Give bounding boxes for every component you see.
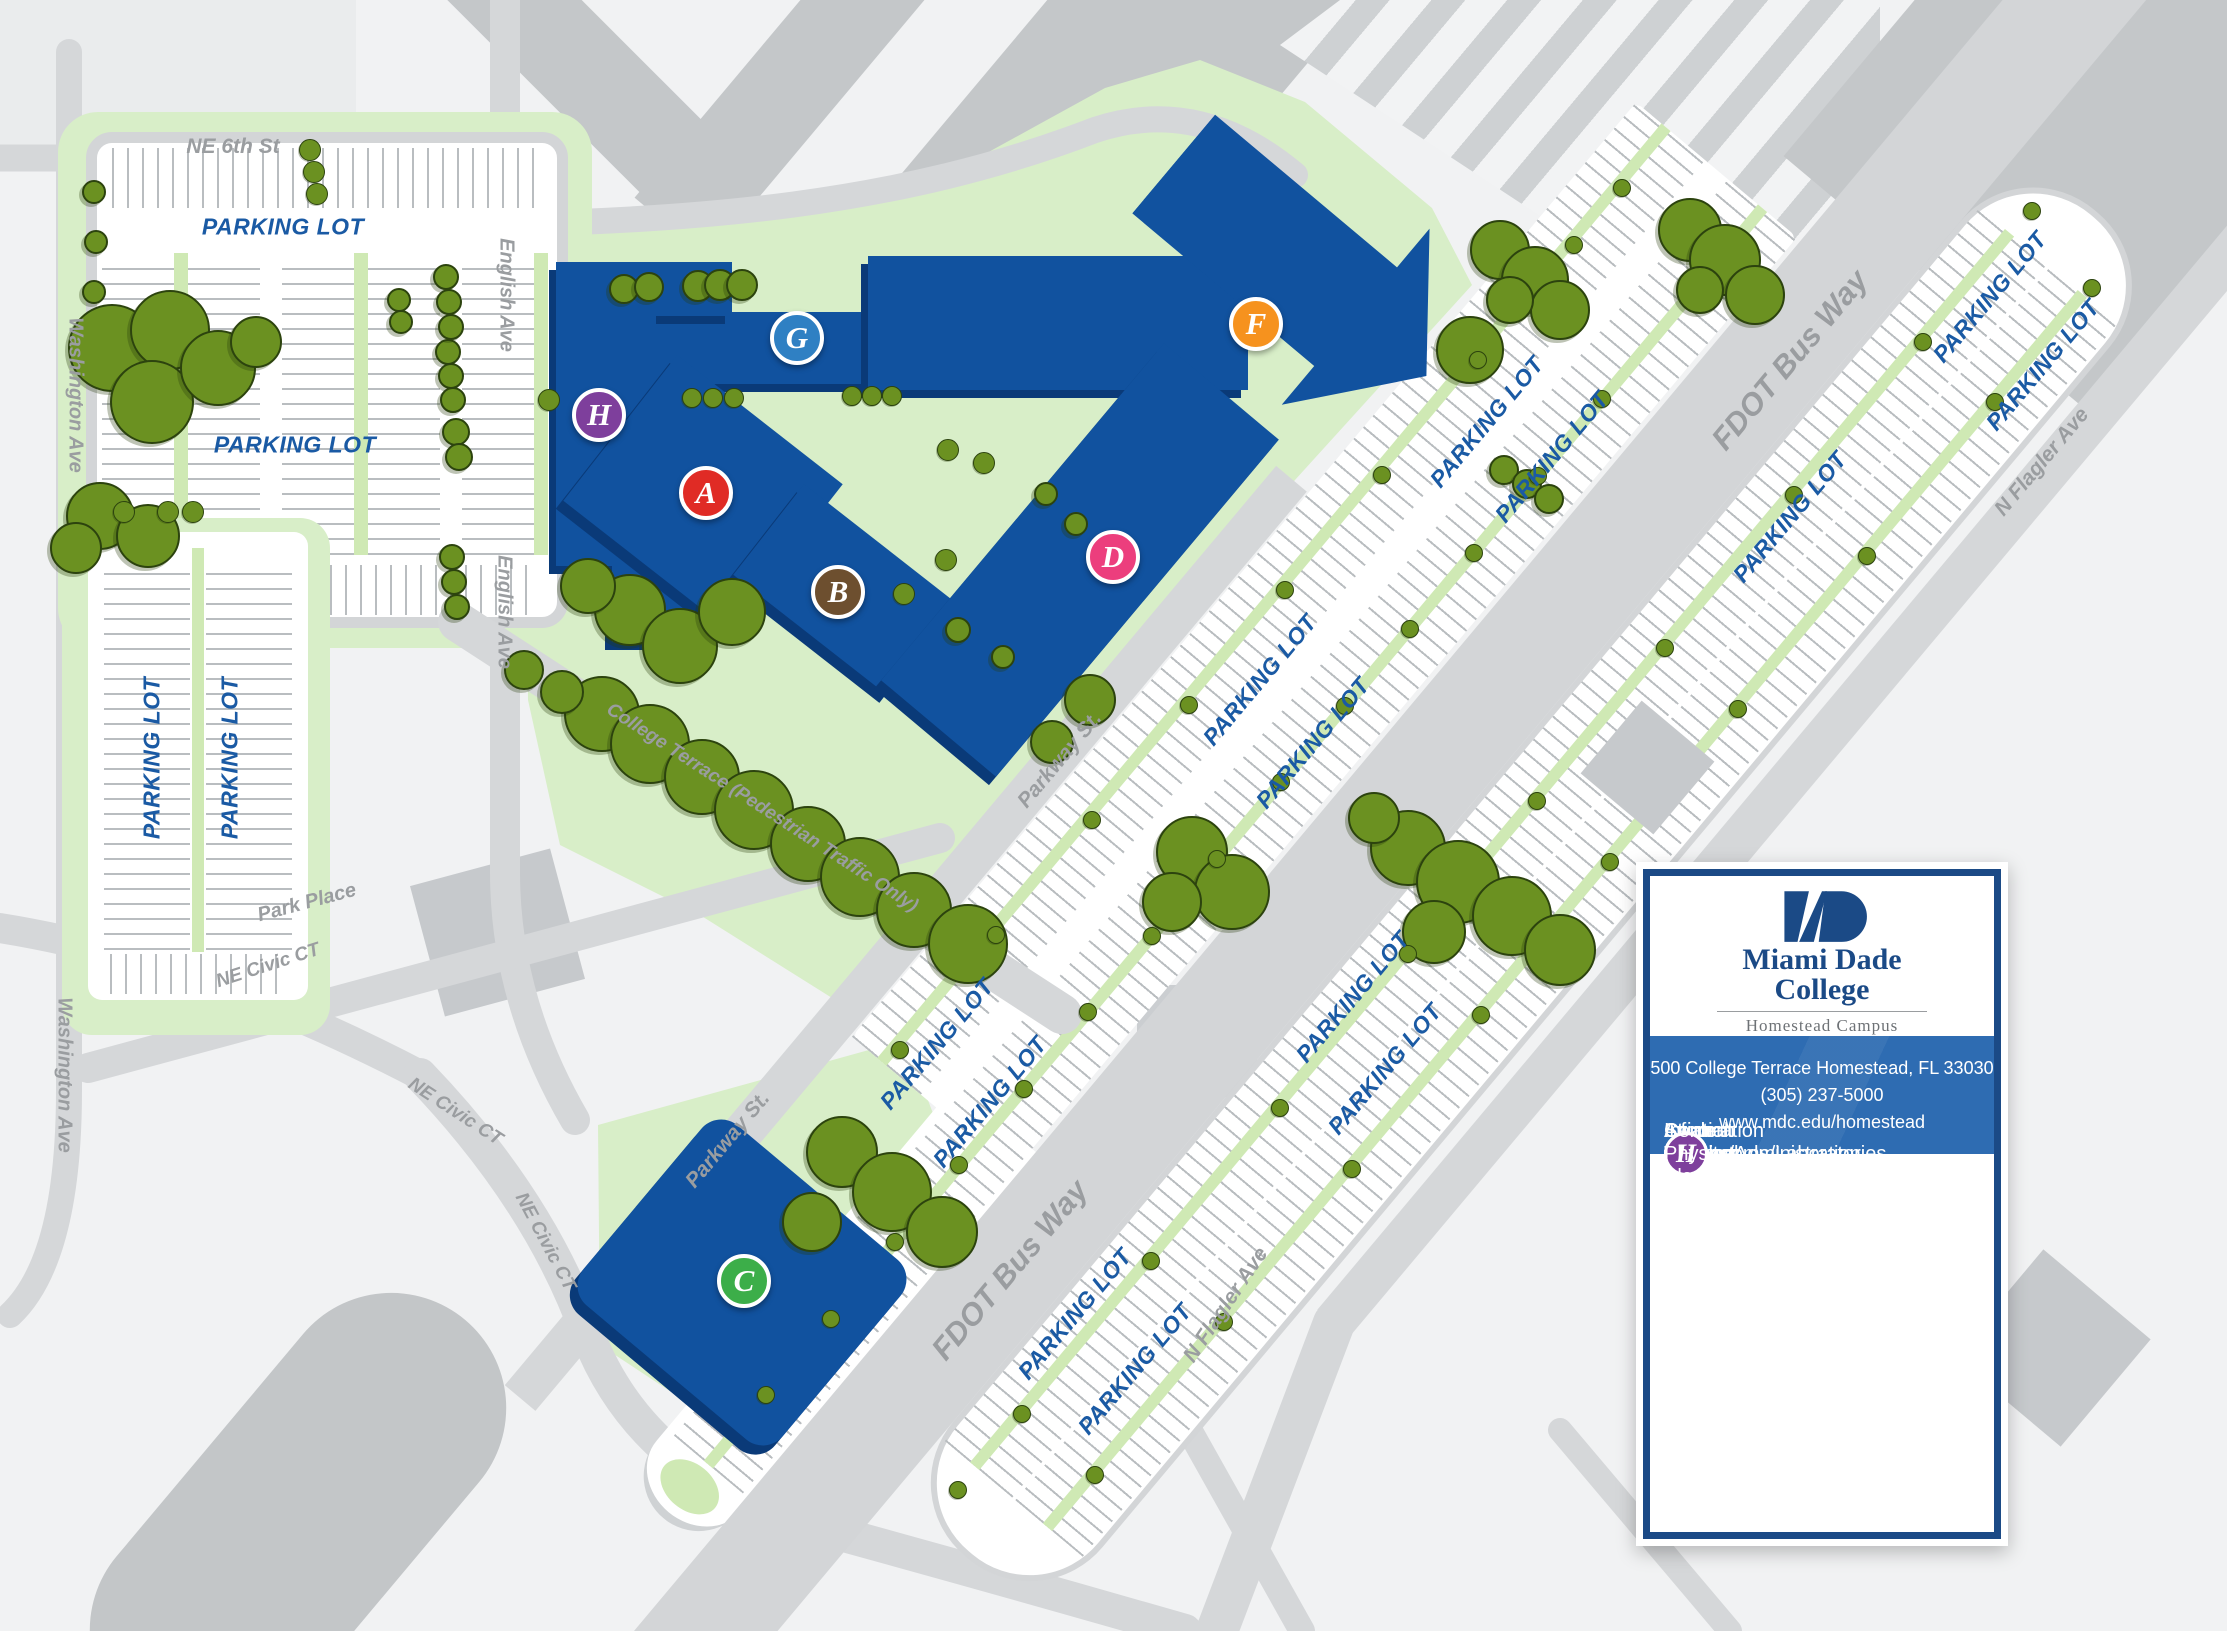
tree-icon [1601,853,1619,871]
tree-icon [893,583,915,605]
legend-frame: Miami Dade College Homestead Campus 500 … [1643,869,2001,1539]
tree-icon [842,386,862,406]
tree-icon [440,387,466,413]
tree-icon [949,1481,967,1499]
tree-icon [182,501,204,523]
tree-icon [935,549,957,571]
tree-icon [1530,280,1590,340]
legend-row-label: Central Physical Plant [1664,1120,1738,1189]
street-name-label: English Ave [495,238,518,352]
legend-panel: Miami Dade College Homestead Campus 500 … [1636,862,2008,1546]
street-name-label: Parkway St. [681,1087,775,1193]
tree-icon [891,1041,909,1059]
tree-icon [1271,1099,1289,1117]
tree-icon [928,904,1008,984]
parking-lot-label: PARKING LOT [1928,226,2053,368]
tree-icon [1079,1003,1097,1021]
tree-icon [84,230,108,254]
tree-icon [1656,639,1674,657]
tree-icon [703,388,723,408]
tree-icon [906,1196,978,1268]
tree-icon [1401,620,1419,638]
building-marker-f[interactable]: F [1229,297,1283,351]
tree-icon [682,388,702,408]
tree-icon [1086,1466,1104,1484]
legend-logo-area: Miami Dade College Homestead Campus [1650,876,1994,1036]
tree-icon [822,1310,840,1328]
tree-icon [445,443,473,471]
tree-icon [113,501,135,523]
building-marker-b[interactable]: B [811,565,865,619]
legend-items: AStudent Support ServicesBFaculty/Admini… [1650,1154,1994,1532]
tree-icon [757,1386,775,1404]
legend-campus-name: Homestead Campus [1746,1016,1898,1036]
building-marker-a[interactable]: A [679,466,733,520]
street-name-label: NE Civic CT [510,1189,580,1294]
tree-icon [1729,700,1747,718]
tree-icon [435,339,461,365]
street-name-label: Washington Ave [53,997,76,1153]
parking-lot-label: PARKING LOT [202,214,364,241]
tree-icon [991,645,1015,669]
tree-icon [1064,512,1088,536]
parking-lot-label: PARKING LOT [1073,1298,1198,1440]
tree-icon [1013,1405,1031,1423]
tree-icon [1472,1006,1490,1024]
tree-icon [726,269,758,301]
tree-icon [1034,482,1058,506]
tree-icon [698,578,766,646]
tree-icon [2023,202,2041,220]
tree-icon [389,310,413,334]
tree-icon [441,569,467,595]
tree-icon [438,314,464,340]
tree-icon [442,418,470,446]
tree-icon [1465,544,1483,562]
tree-icon [973,452,995,474]
building-marker-d[interactable]: D [1086,530,1140,584]
tree-icon [1613,179,1631,197]
street-name-label: N Flagler Ave [1179,1243,1274,1367]
tree-icon [724,388,744,408]
tree-icon [50,522,102,574]
tree-icon [1194,854,1270,930]
tree-icon [540,670,584,714]
tree-icon [782,1192,842,1252]
tree-icon [433,264,459,290]
parking-lot-label: PARKING LOT [214,432,376,459]
tree-icon [1208,850,1226,868]
parking-lot-label: PARKING LOT [1251,672,1376,814]
tree-icon [230,316,282,368]
legend-college-name: Miami Dade College [1742,945,1901,1005]
tree-icon [1565,236,1583,254]
street-name-label: English Ave [493,555,516,669]
tree-icon [1486,276,1534,324]
tree-icon [1676,266,1724,314]
parking-lot-label: PARKING LOT [1198,609,1323,751]
tree-icon [1142,872,1202,932]
street-name-label: Park Place [255,879,359,927]
legend-divider [1717,1011,1927,1012]
tree-icon [987,926,1005,944]
tree-icon [438,363,464,389]
campus-map-canvas: PARKING LOTPARKING LOTPARKING LOTPARKING… [0,0,2227,1631]
tree-icon [436,289,462,315]
tree-icon [1524,914,1596,986]
tree-icon [1348,792,1400,844]
legend-address-line: (305) 237-5000 [1760,1085,1883,1106]
tree-icon [886,1233,904,1251]
tree-icon [1528,792,1546,810]
tree-icon [1436,316,1504,384]
tree-icon [82,180,106,204]
tree-icon [299,139,321,161]
building-marker-g[interactable]: G [770,311,824,365]
tree-icon [387,288,411,312]
mdc-logo-icon [1762,888,1882,945]
tree-icon [1725,265,1785,325]
tree-icon [1373,466,1391,484]
tree-icon [937,439,959,461]
tree-icon [1142,1252,1160,1270]
building-marker-c[interactable]: C [717,1254,771,1308]
tree-icon [157,501,179,523]
parking-lot-label: PARKING LOT [1728,446,1853,588]
street-name-label: Washington Ave [64,317,87,473]
tree-icon [1343,1160,1361,1178]
tree-icon [634,272,664,302]
tree-icon [444,594,470,620]
parking-lot-label: PARKING LOT [139,677,166,839]
tree-icon [882,386,902,406]
tree-icon [439,544,465,570]
tree-icon [1083,811,1101,829]
tree-icon [862,386,882,406]
tree-icon [1143,927,1161,945]
tree-icon [945,617,971,643]
tree-icon [538,389,560,411]
tree-icon [1469,351,1487,369]
street-name-label: NE Civic CT [213,939,322,993]
tree-icon [303,161,325,183]
tree-icon [306,183,328,205]
tree-icon [1276,581,1294,599]
street-name-label: NE 6th St [186,135,279,159]
tree-icon [82,280,106,304]
street-name-label: NE Civic CT [404,1073,506,1150]
street-name-label: College Terrace (Pedestrian Traffic Only… [602,699,922,917]
building-marker-h[interactable]: H [572,388,626,442]
parking-lot-label: PARKING LOT [217,677,244,839]
tree-icon [560,558,616,614]
tree-icon [1180,696,1198,714]
legend-address-line: 500 College Terrace Homestead, FL 33030 [1650,1058,1993,1079]
tree-icon [1858,547,1876,565]
